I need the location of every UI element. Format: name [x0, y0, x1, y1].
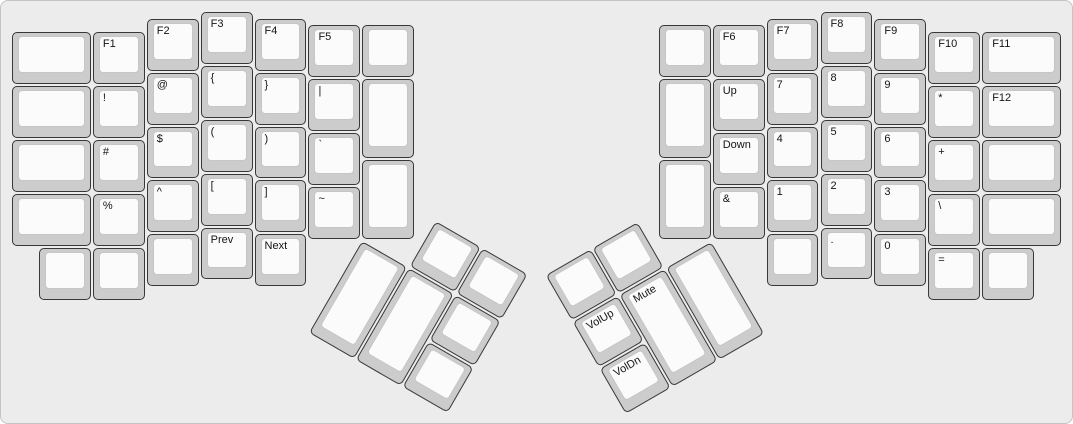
key-f2[interactable]: F2 — [147, 19, 199, 71]
key-num-7[interactable]: 7 — [767, 73, 819, 125]
keycap-top-surface: F4 — [261, 23, 301, 60]
key-blank[interactable] — [982, 248, 1034, 300]
key-paren-open[interactable]: ( — [201, 120, 253, 172]
key-label: F1 — [103, 38, 116, 51]
keycap-top-surface: 0 — [880, 238, 920, 275]
keycap-top-surface — [45, 252, 85, 289]
key-num-1[interactable]: 1 — [767, 180, 819, 232]
key-up[interactable]: Up — [713, 79, 765, 131]
key-label: 9 — [884, 79, 890, 92]
key-label: 4 — [777, 133, 783, 146]
key-label: ( — [211, 126, 215, 139]
key-blank[interactable] — [12, 32, 91, 84]
key-f10[interactable]: F10 — [928, 32, 980, 84]
key-label: 0 — [884, 240, 890, 253]
key-f1[interactable]: F1 — [93, 32, 145, 84]
key-label: 3 — [884, 186, 890, 199]
key-label: * — [938, 92, 942, 105]
keycap-top-surface — [153, 238, 193, 275]
key-num-6[interactable]: 6 — [874, 127, 926, 179]
key-blank[interactable] — [659, 79, 711, 158]
key-label: F6 — [723, 31, 736, 44]
key-blank[interactable] — [982, 140, 1061, 192]
key-backslash[interactable]: \ — [928, 194, 980, 246]
keycap-top-surface: 2 — [827, 178, 867, 215]
keycap-top-surface: 4 — [773, 131, 813, 168]
keycap-top-surface: Down — [719, 137, 759, 174]
keycap-top-surface — [665, 164, 705, 228]
keycap-top-surface: 5 — [827, 124, 867, 161]
key-plus[interactable]: + — [928, 140, 980, 192]
key-f4[interactable]: F4 — [255, 19, 307, 71]
key-label: 5 — [831, 126, 837, 139]
key-f12[interactable]: F12 — [982, 86, 1061, 138]
keycap-top-surface: 7 — [773, 77, 813, 114]
keycap-top-surface: = — [934, 252, 974, 289]
key-blank[interactable] — [39, 248, 91, 300]
keycap-top-surface — [18, 144, 85, 181]
key-label: F8 — [831, 18, 844, 31]
key-blank[interactable] — [12, 140, 91, 192]
keycap-top-surface: 9 — [880, 77, 920, 114]
key-blank[interactable] — [767, 234, 819, 286]
key-f3[interactable]: F3 — [201, 12, 253, 64]
key-blank[interactable] — [93, 248, 145, 300]
key-tilde[interactable]: ~ — [308, 187, 360, 239]
keycap-top-surface: ~ — [314, 191, 354, 228]
keycap-top-surface: F11 — [988, 36, 1055, 73]
key-f7[interactable]: F7 — [767, 19, 819, 71]
key-num-0[interactable]: 0 — [874, 234, 926, 286]
key-label: ~ — [318, 193, 324, 206]
key-blank[interactable] — [659, 25, 711, 77]
keycap-top-surface: } — [261, 77, 301, 114]
key-label: { — [211, 72, 215, 85]
key-next[interactable]: Next — [255, 234, 307, 286]
key-blank[interactable] — [982, 194, 1061, 246]
key-period[interactable]: . — [821, 228, 873, 280]
keycap-top-surface: ] — [261, 184, 301, 221]
key-num-3[interactable]: 3 — [874, 180, 926, 232]
key-label: ) — [265, 133, 269, 146]
key-blank[interactable] — [12, 86, 91, 138]
key-label: 8 — [831, 72, 837, 85]
keycap-top-surface: ! — [99, 90, 139, 127]
key-brace-close[interactable]: } — [255, 73, 307, 125]
keycap-top-surface: 3 — [880, 184, 920, 221]
key-blank[interactable] — [12, 194, 91, 246]
keycap-top-surface: . — [827, 232, 867, 269]
key-label: & — [723, 193, 730, 206]
key-label: % — [103, 200, 113, 213]
keycap-top-surface: 1 — [773, 184, 813, 221]
keycap-top-surface: F12 — [988, 90, 1055, 127]
key-label: F4 — [265, 25, 278, 38]
key-num-5[interactable]: 5 — [821, 120, 873, 172]
keycap-top-surface: [ — [207, 178, 247, 215]
keycap-top-surface: ^ — [153, 184, 193, 221]
key-equals[interactable]: = — [928, 248, 980, 300]
keycap-top-surface: $ — [153, 131, 193, 168]
key-blank[interactable] — [362, 79, 414, 158]
keycap-top-surface: ` — [314, 137, 354, 174]
keycap-top-surface — [18, 198, 85, 235]
keycap-top-surface — [988, 144, 1055, 181]
key-label: VolUp — [584, 307, 616, 333]
key-label: F11 — [992, 38, 1010, 51]
key-label: F3 — [211, 18, 224, 31]
keycap-top-surface: ) — [261, 131, 301, 168]
key-pipe[interactable]: | — [308, 79, 360, 131]
keycap-top-surface: F1 — [99, 36, 139, 73]
key-percent[interactable]: % — [93, 194, 145, 246]
key-label: @ — [157, 79, 168, 92]
keycap-top-surface — [99, 252, 139, 289]
keycap-top-surface: ( — [207, 124, 247, 161]
key-f5[interactable]: F5 — [308, 25, 360, 77]
keycap-top-surface — [988, 198, 1055, 235]
key-label: = — [938, 254, 944, 267]
keycap-top-surface: 8 — [827, 70, 867, 107]
key-down[interactable]: Down — [713, 133, 765, 185]
key-label: # — [103, 146, 109, 159]
keycap-top-surface: @ — [153, 77, 193, 114]
key-label: F9 — [884, 25, 897, 38]
key-f11[interactable]: F11 — [982, 32, 1061, 84]
key-blank[interactable] — [362, 160, 414, 239]
keycap-top-surface — [18, 36, 85, 73]
key-label: Mute — [631, 283, 659, 306]
keycap-top-surface: { — [207, 70, 247, 107]
keycap-top-surface — [368, 29, 408, 66]
keycap-top-surface — [368, 83, 408, 147]
keycap-top-surface: F3 — [207, 16, 247, 53]
key-label: F7 — [777, 25, 790, 38]
keycap-top-surface: F6 — [719, 29, 759, 66]
key-label: ^ — [157, 186, 162, 199]
keycap-top-surface — [553, 256, 606, 308]
keycap-top-surface: F5 — [314, 29, 354, 66]
keycap-top-surface — [600, 229, 653, 281]
key-bracket-close[interactable]: ] — [255, 180, 307, 232]
key-asterisk[interactable]: * — [928, 86, 980, 138]
key-label: 6 — [884, 133, 890, 146]
key-label: ` — [318, 139, 322, 152]
key-label: Up — [723, 85, 737, 98]
key-caret[interactable]: ^ — [147, 180, 199, 232]
keycap-top-surface — [18, 90, 85, 127]
key-ampersand[interactable]: & — [713, 187, 765, 239]
key-num-8[interactable]: 8 — [821, 66, 873, 118]
key-label: ] — [265, 186, 268, 199]
key-num-2[interactable]: 2 — [821, 174, 873, 226]
key-label: VolDn — [611, 354, 643, 380]
key-num-9[interactable]: 9 — [874, 73, 926, 125]
key-f8[interactable]: F8 — [821, 12, 873, 64]
key-label: Down — [723, 139, 751, 152]
key-label: + — [938, 146, 944, 159]
key-label: Next — [265, 240, 288, 253]
key-label: 2 — [831, 180, 837, 193]
key-label: . — [831, 234, 834, 247]
key-label: F12 — [992, 92, 1011, 105]
keycap-top-surface — [368, 164, 408, 228]
key-label: $ — [157, 133, 163, 146]
keycap-top-surface: + — [934, 144, 974, 181]
keycap-top-surface: F10 — [934, 36, 974, 73]
keycap-top-surface: F9 — [880, 23, 920, 60]
key-label: [ — [211, 180, 214, 193]
key-f6[interactable]: F6 — [713, 25, 765, 77]
key-label: 7 — [777, 79, 783, 92]
keycap-top-surface — [665, 83, 705, 147]
key-label: | — [318, 85, 321, 98]
key-hash[interactable]: # — [93, 140, 145, 192]
keycap-top-surface — [773, 238, 813, 275]
key-label: F2 — [157, 25, 170, 38]
keycap-top-surface: F7 — [773, 23, 813, 60]
key-dollar[interactable]: $ — [147, 127, 199, 179]
keycap-top-surface — [467, 255, 520, 307]
keyboard-canvas: F1!#%F2@$^F3{([F4})]F5|`~PrevNextF6UpDow… — [0, 0, 1073, 424]
keycap-top-surface — [988, 252, 1028, 289]
keycap-top-surface: Prev — [207, 232, 247, 269]
key-label: 1 — [777, 186, 783, 199]
keycap-top-surface — [421, 228, 474, 280]
key-label: Prev — [211, 234, 234, 247]
keycap-top-surface: Next — [261, 238, 301, 275]
key-label: F5 — [318, 31, 331, 44]
keycap-top-surface: # — [99, 144, 139, 181]
keycap-top-surface: 6 — [880, 131, 920, 168]
key-blank[interactable] — [147, 234, 199, 286]
key-prev[interactable]: Prev — [201, 228, 253, 280]
key-num-4[interactable]: 4 — [767, 127, 819, 179]
key-paren-close[interactable]: ) — [255, 127, 307, 179]
key-bracket-open[interactable]: [ — [201, 174, 253, 226]
key-exclamation[interactable]: ! — [93, 86, 145, 138]
key-f9[interactable]: F9 — [874, 19, 926, 71]
key-label: F10 — [938, 38, 957, 51]
key-label: \ — [938, 200, 941, 213]
keycap-top-surface: F2 — [153, 23, 193, 60]
key-label: ! — [103, 92, 106, 105]
key-at[interactable]: @ — [147, 73, 199, 125]
key-blank[interactable] — [659, 160, 711, 239]
keycap-top-surface: F8 — [827, 16, 867, 53]
keycap-top-surface: * — [934, 90, 974, 127]
keycap-top-surface: & — [719, 191, 759, 228]
keycap-top-surface — [665, 29, 705, 66]
key-blank[interactable] — [362, 25, 414, 77]
keycap-top-surface: \ — [934, 198, 974, 235]
keycap-top-surface: Up — [719, 83, 759, 120]
key-label: } — [265, 79, 269, 92]
key-backtick[interactable]: ` — [308, 133, 360, 185]
keycap-top-surface: | — [314, 83, 354, 120]
key-brace-open[interactable]: { — [201, 66, 253, 118]
keycap-top-surface: % — [99, 198, 139, 235]
